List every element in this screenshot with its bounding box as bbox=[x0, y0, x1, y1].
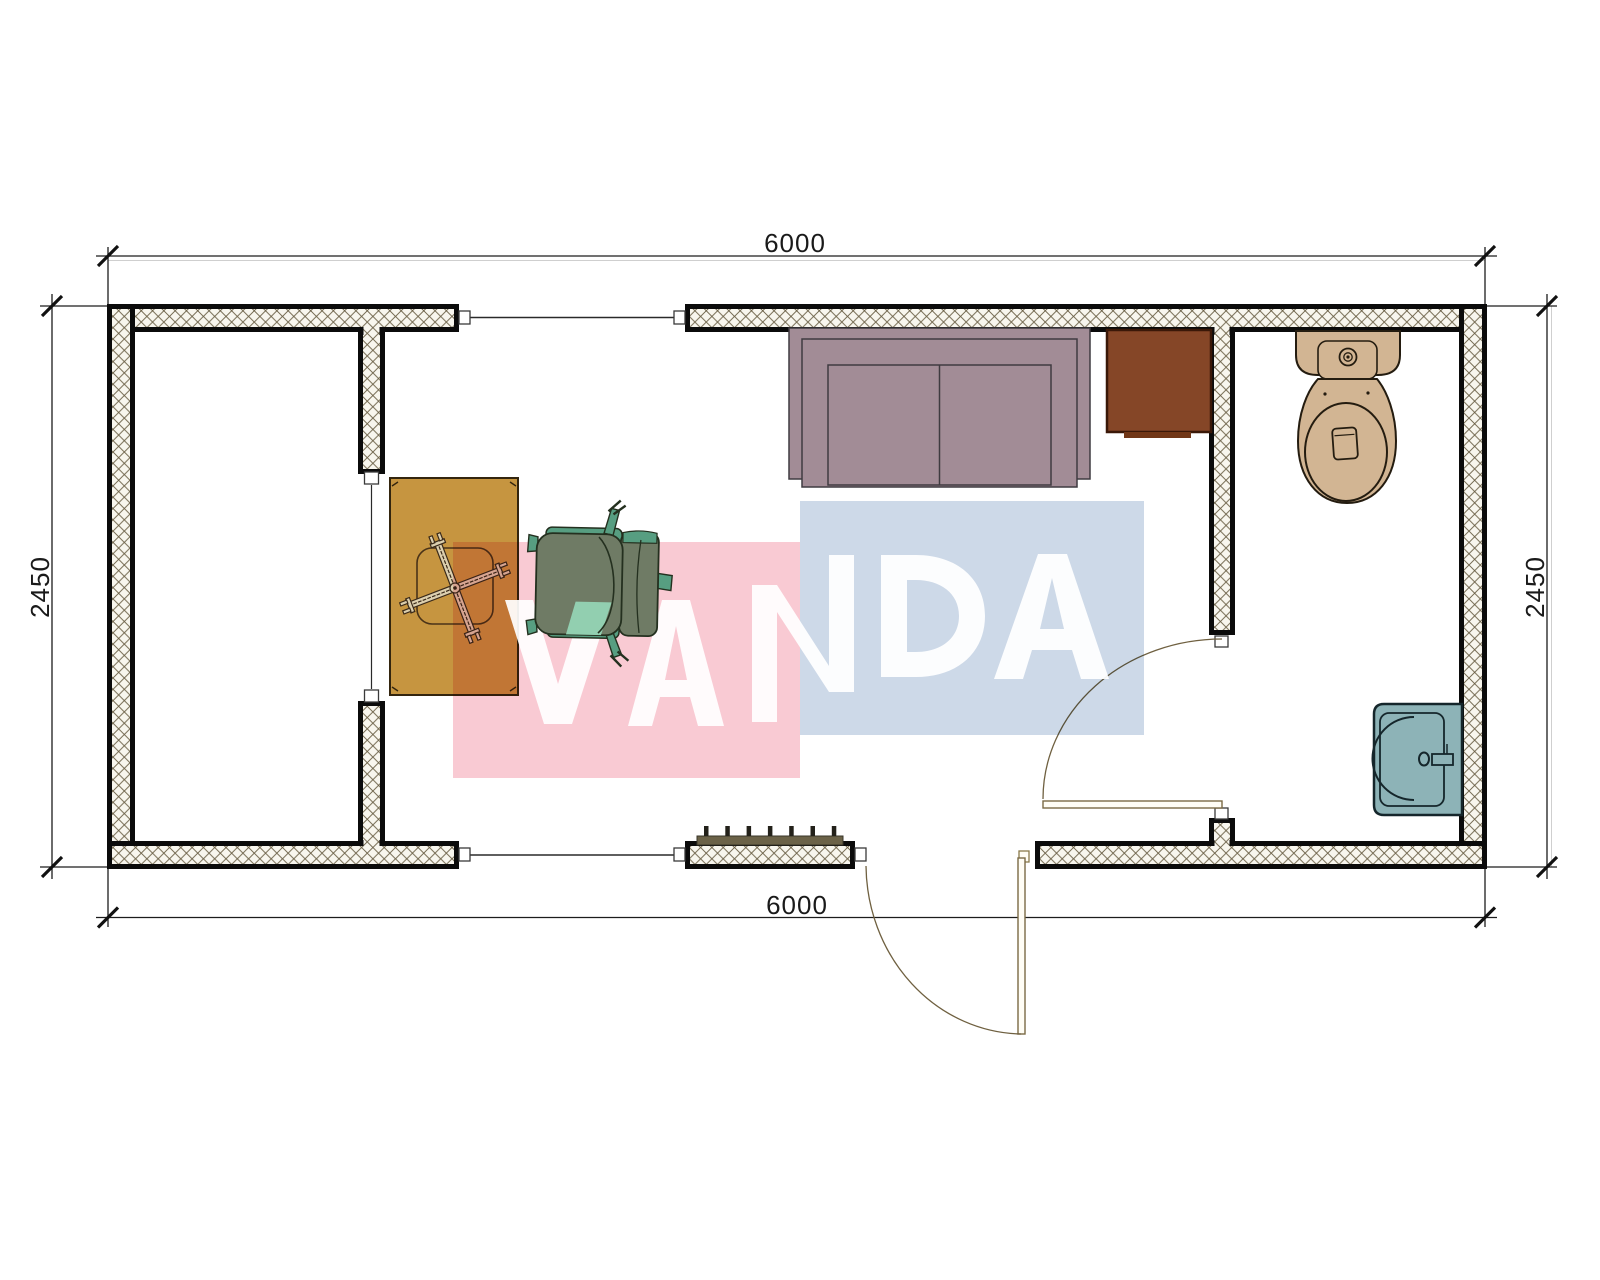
svg-text:2450: 2450 bbox=[25, 556, 55, 618]
svg-text:6000: 6000 bbox=[766, 890, 828, 920]
svg-text:6000: 6000 bbox=[764, 228, 826, 258]
svg-text:2450: 2450 bbox=[1520, 556, 1550, 618]
